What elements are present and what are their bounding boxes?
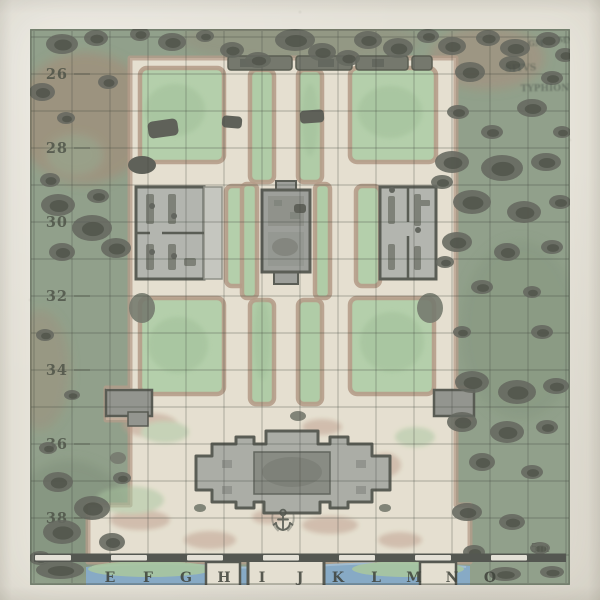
tree-blob [436,256,454,268]
tree-blob [500,39,530,57]
west-building [136,187,222,279]
tree-blob [84,30,108,46]
tree-blob [64,390,80,400]
tree-blob [452,503,482,521]
tree-blob [431,175,453,189]
tree-blob [275,29,315,51]
east-building [380,187,436,279]
row-label: 30 [46,214,68,231]
tree-blob [72,215,112,241]
tree-blob [531,325,553,339]
tree-blob [308,43,336,61]
tree-blob [43,520,81,544]
tree-blob [46,34,78,54]
row-label: 28 [46,140,68,157]
scale-label: 5m [530,541,550,555]
seawall-light-segment [339,555,375,561]
tree-blob [336,50,360,66]
seawall-light-segment [111,555,147,561]
column-label: G [180,570,192,586]
tree-blob [442,232,472,252]
row-label: 34 [46,362,68,379]
tree-blob [158,33,186,51]
tree-blob [39,442,57,454]
tree-blob [29,83,55,101]
tree-blob [540,566,564,578]
tree-blob [354,31,382,49]
seawall-light-segment [187,555,223,561]
tree-blob [455,371,489,393]
paper-background: 26283032343638 GMMNSITVSTYPHION [0,0,600,600]
tree-blob [469,453,495,471]
tree-blob [517,99,547,117]
tree-blob [453,190,491,214]
tree-blob [490,421,524,443]
tree-blob [481,155,523,181]
column-label: I [259,570,266,586]
tree-blob [453,326,471,338]
tree-blob [455,62,485,82]
faint-annotation: SITVS [505,63,536,75]
faint-annotation: MN [558,35,574,45]
column-label: N [446,570,459,586]
tree-blob [74,496,110,520]
tree-blob [196,30,214,42]
central-shrine [262,181,310,284]
column-label: F [143,570,153,586]
tree-blob [36,329,54,341]
tree-blob [521,465,543,479]
tree-blob [507,201,541,223]
battle-map[interactable]: 26283032343638 GMMNSITVSTYPHION [0,0,600,600]
tree-blob [220,42,244,58]
tree-blob [41,194,75,216]
column-label: H [217,570,230,586]
tree-blob [101,238,131,258]
row-label: 26 [46,66,68,83]
tree-blob [494,243,520,261]
seawall-scale-bar [34,554,566,563]
column-label: O [484,570,496,586]
seawall-light-segment [35,555,71,561]
tree-blob [555,48,575,62]
tree-blob [447,412,477,432]
tree-blob [435,151,469,173]
tree-blob [541,240,563,254]
tree-blob [98,75,118,89]
tree-blob [36,561,84,579]
tree-blob [383,38,413,58]
row-label: 32 [46,288,68,305]
tree-blob [476,30,500,46]
seawall-light-segment [491,555,527,561]
column-label: L [371,570,381,586]
column-label: J [295,570,304,586]
faint-annotation: TYPHION [521,84,570,95]
tree-blob [245,52,271,68]
tree-blob [49,243,75,261]
tree-blob [523,286,541,298]
faint-annotation: GM [528,38,544,49]
tree-blob [543,378,569,394]
tree-blob [531,153,561,171]
tree-blob [498,380,536,404]
tree-blob [417,29,439,43]
tree-blob [113,472,131,484]
tree-blob [40,173,60,187]
tree-blob [130,27,150,41]
tree-blob [536,420,558,434]
column-label: E [105,570,116,586]
tree-blob [549,195,571,209]
grand-hall [196,431,390,513]
seawall-light-segment [415,555,451,561]
column-label: M [406,570,422,586]
tree-blob [499,514,525,530]
seawall-light-segment [263,555,299,561]
tree-blob [438,37,466,55]
tree-blob [481,125,503,139]
tree-blob [87,189,109,203]
tree-blob [99,533,125,551]
tree-blob [471,280,493,294]
tree-blob [447,105,469,119]
tree-blob [43,472,73,492]
tree-blob [57,112,75,124]
column-label: K [332,570,345,586]
